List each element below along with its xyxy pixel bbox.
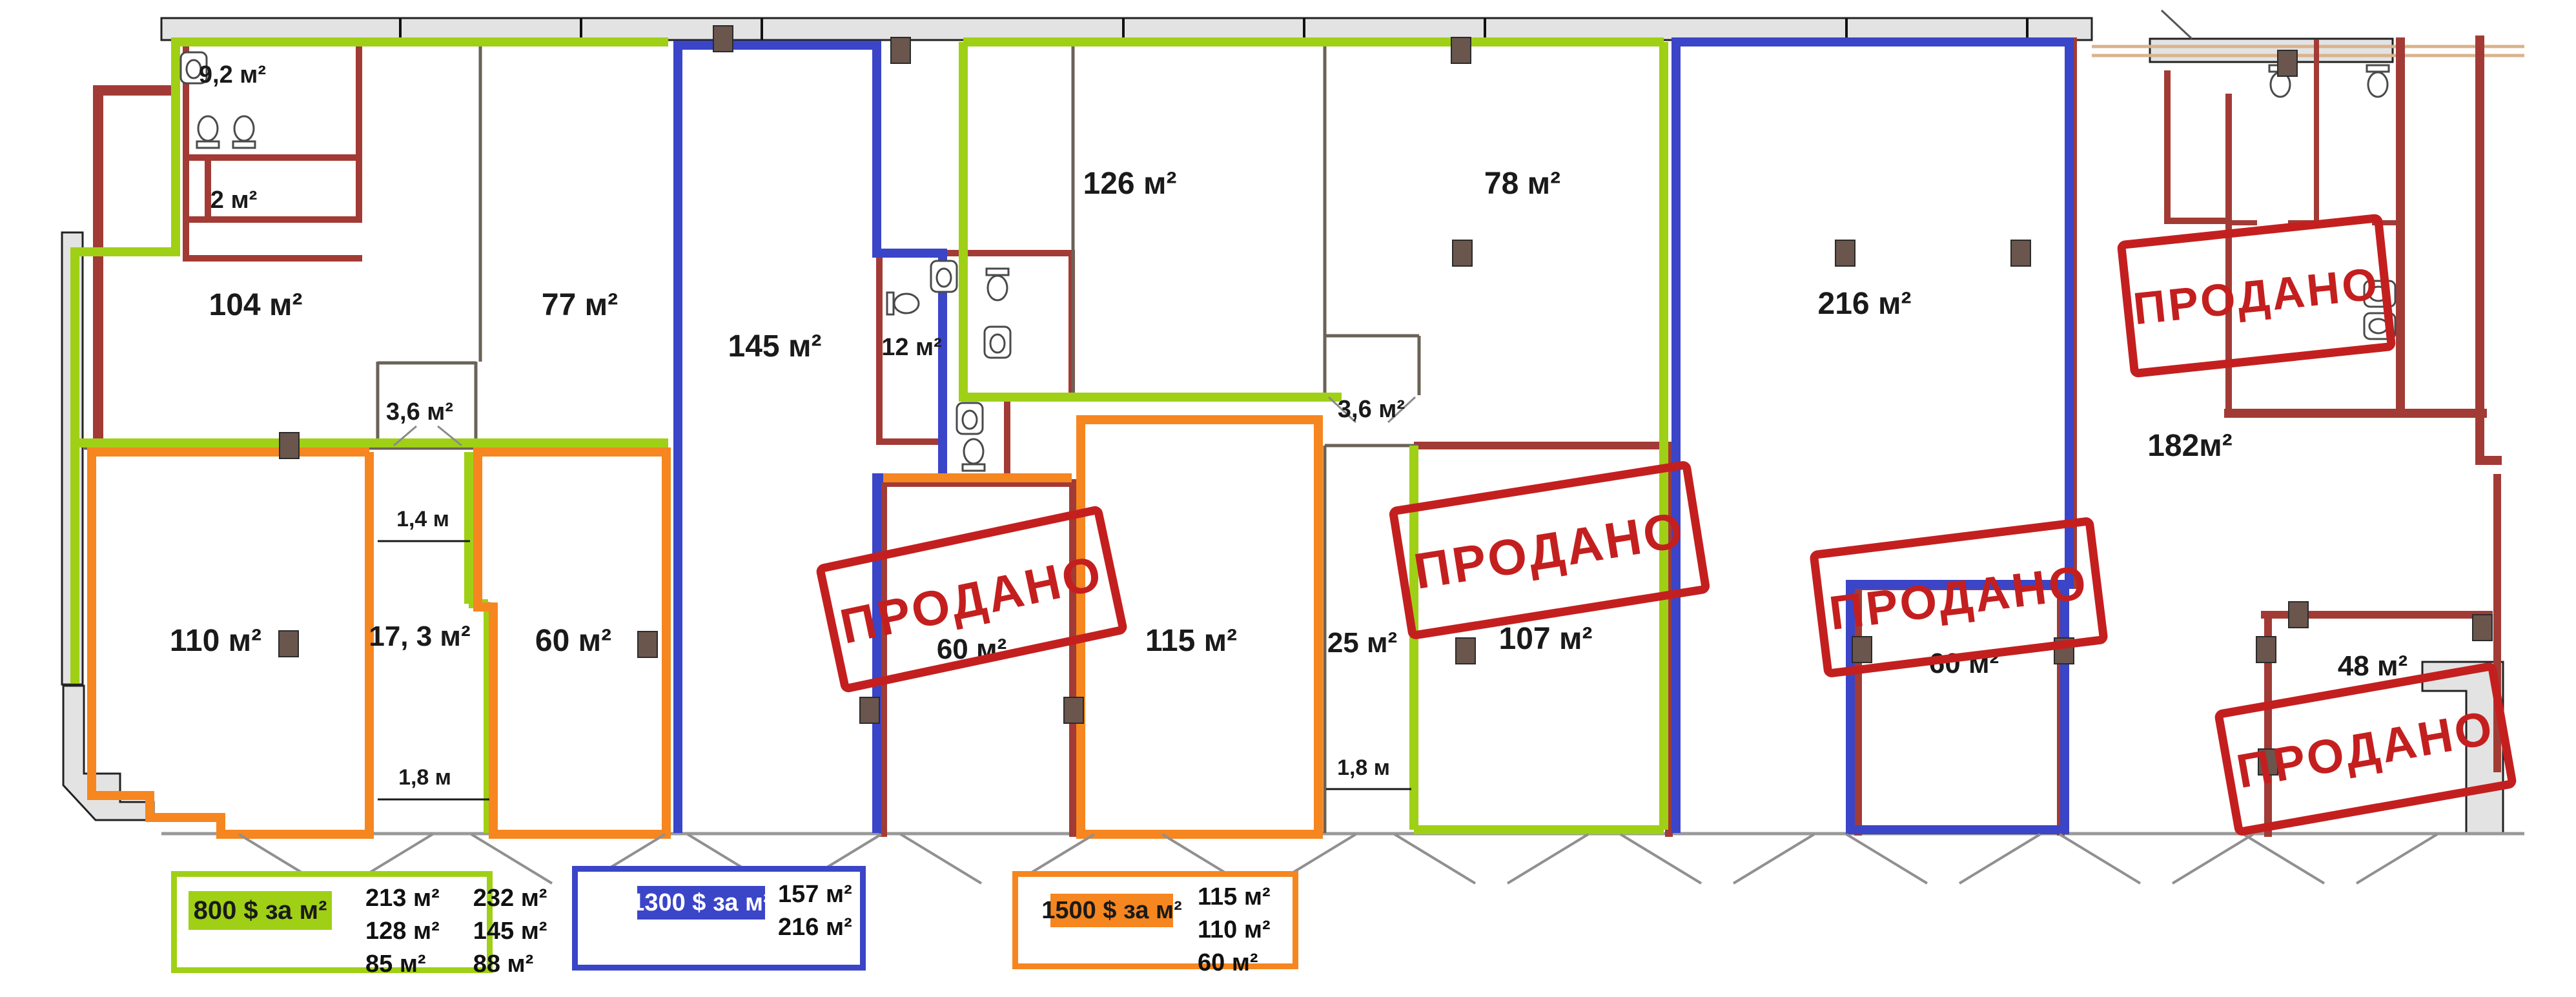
floor-plan-page: 1,4 м1,8 м1,8 м 9,2 м²2 м²104 м²77 м²3,6… xyxy=(0,0,2576,997)
room-area-label: 3,6 м² xyxy=(386,398,453,426)
column-marker xyxy=(1456,638,1475,664)
sink-icon xyxy=(985,327,1010,358)
floor-plan-svg: 1,4 м1,8 м1,8 м 9,2 м²2 м²104 м²77 м²3,6… xyxy=(0,0,2576,997)
column-marker xyxy=(1064,697,1083,723)
price-chip-1300: 1300 $ за м² xyxy=(637,886,765,920)
column-marker xyxy=(1451,37,1471,63)
room-area-label: 216 м² xyxy=(1818,287,1912,321)
door-swing xyxy=(1733,834,1814,883)
sold-stamp-text: ПРОДАНО xyxy=(2233,701,2499,799)
sink-icon xyxy=(957,403,983,434)
bathroom-fixtures xyxy=(181,52,2395,471)
legend-area: 157 м² xyxy=(778,881,852,909)
room-area-label: 107 м² xyxy=(1499,622,1593,656)
door-swing xyxy=(901,834,981,883)
dimension-label: 1,8 м xyxy=(1337,755,1390,780)
door-swing xyxy=(1846,834,1927,883)
column-marker xyxy=(2278,50,2297,76)
door-swing xyxy=(1508,834,1588,883)
legend-area: 110 м² xyxy=(1198,916,1271,944)
column-marker xyxy=(1852,637,1872,663)
room-area-label: 48 м² xyxy=(2338,650,2407,682)
door-swing xyxy=(1959,834,2040,883)
room-area-label: 104 м² xyxy=(209,288,303,322)
legend-area: 216 м² xyxy=(778,914,852,941)
legend-areas-800: 213 м² 232 м² 128 м² 145 м² 85 м² 88 м² xyxy=(365,885,547,978)
room-area-label: 126 м² xyxy=(1083,167,1177,201)
room-area-label: 2 м² xyxy=(210,187,257,214)
toilet-icon xyxy=(887,293,919,314)
room-area-label: 110 м² xyxy=(170,624,261,658)
door-swing xyxy=(2060,834,2140,883)
room-area-label: 9,2 м² xyxy=(199,61,266,88)
column-marker xyxy=(638,632,657,657)
room-area-label: 78 м² xyxy=(1484,167,1560,201)
legend-box-1500: 1500 $ за м² 115 м² 110 м² 60 м² xyxy=(1012,871,1298,969)
column-marker xyxy=(2473,615,2492,641)
door-swing xyxy=(1395,834,1475,883)
legend-area: 115 м² xyxy=(1198,883,1271,911)
legend-area: 145 м² xyxy=(473,918,547,945)
column-marker xyxy=(2289,602,2308,628)
door-swing xyxy=(2244,834,2324,883)
column-marker xyxy=(279,631,298,657)
toilet-icon xyxy=(197,116,219,148)
sold-stamp-text: ПРОДАНО xyxy=(1826,555,2091,641)
room-area-label: 12 м² xyxy=(881,334,942,361)
door-swing xyxy=(1620,834,1701,883)
legend-areas-1300: 157 м² 216 м² xyxy=(778,881,852,941)
room-area-label: 60 м² xyxy=(535,624,611,658)
room-area-label: 17, 3 м² xyxy=(369,621,470,652)
price-chip-800: 800 $ за м² xyxy=(189,891,332,930)
column-marker xyxy=(860,697,879,723)
legend-box-800: 800 $ за м² 213 м² 232 м² 128 м² 145 м² … xyxy=(171,871,493,973)
column-marker xyxy=(713,26,733,52)
toilet-icon xyxy=(2367,65,2389,97)
column-marker xyxy=(1835,240,1855,266)
door-swing xyxy=(2172,834,2253,883)
sold-stamp: ПРОДАНО xyxy=(2121,218,2392,374)
entrance-door-swings xyxy=(239,834,2437,883)
column-marker xyxy=(2011,240,2030,266)
legend-area: 232 м² xyxy=(473,885,547,912)
dimension-label: 1,4 м xyxy=(396,507,449,531)
room-area-label: 182м² xyxy=(2147,429,2233,463)
legend-area: 128 м² xyxy=(365,918,440,945)
sold-stamp: ПРОДАНО xyxy=(1393,465,1706,636)
sold-stamp-text: ПРОДАНО xyxy=(2131,258,2382,334)
toilet-icon xyxy=(963,439,985,471)
price-chip-1500: 1500 $ за м² xyxy=(1050,894,1173,927)
sink-icon xyxy=(931,261,957,292)
legend-box-1300: 1300 $ за м² 157 м² 216 м² xyxy=(572,866,866,971)
room-area-label: 77 м² xyxy=(542,288,618,322)
legend-area: 85 м² xyxy=(365,951,440,978)
door-swing xyxy=(2356,834,2437,883)
toilet-icon xyxy=(233,116,255,148)
room-area-label: 25 м² xyxy=(1327,627,1397,659)
room-area-label: 145 м² xyxy=(728,329,822,364)
interior-walls xyxy=(84,40,2497,833)
unit-outline-orange xyxy=(92,420,1318,834)
column-marker xyxy=(1453,240,1472,266)
room-area-label: 3,6 м² xyxy=(1338,396,1405,423)
legend-area: 88 м² xyxy=(473,951,547,978)
legend-area: 213 м² xyxy=(365,885,440,912)
dimension-label: 1,8 м xyxy=(398,765,451,790)
room-area-label: 115 м² xyxy=(1145,624,1237,658)
toilet-icon xyxy=(986,269,1008,300)
column-marker xyxy=(891,37,910,63)
legend-areas-1500: 115 м² 110 м² 60 м² xyxy=(1198,883,1271,977)
column-marker xyxy=(280,433,299,458)
column-marker xyxy=(2256,637,2276,663)
sold-stamp-text: ПРОДАНО xyxy=(1410,501,1689,600)
legend-area: 60 м² xyxy=(1198,949,1271,977)
